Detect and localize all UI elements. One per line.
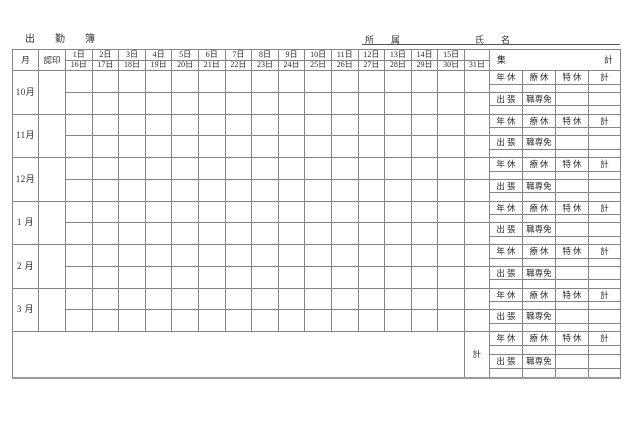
attendance-table: 月認印1日2日3日4日5日6日7日8日9日10日11日12日13日14日15日集… — [12, 49, 621, 379]
day-cell — [464, 223, 489, 245]
leave-label: 特 休 — [555, 332, 588, 346]
leave-label: 特 休 — [555, 114, 588, 128]
value-cell — [588, 84, 620, 92]
leave-label: 療 休 — [522, 114, 555, 128]
day-cell — [305, 201, 332, 223]
day-cell — [145, 136, 172, 158]
leave-label: 年 休 — [489, 158, 522, 172]
day-cell — [358, 114, 385, 136]
day-cell — [119, 288, 146, 310]
day-cell — [464, 158, 489, 180]
day-cell — [198, 223, 225, 245]
day-cell — [225, 136, 252, 158]
month-col-header: 月 — [13, 50, 39, 71]
value-cell — [588, 302, 620, 310]
day-cell — [278, 288, 305, 310]
value-cell — [489, 302, 522, 310]
value-cell — [555, 355, 588, 369]
day-cell — [252, 310, 279, 332]
day-cell — [252, 71, 279, 93]
day-cell — [119, 266, 146, 288]
day-cell — [145, 179, 172, 201]
day-cell — [66, 136, 93, 158]
duty-label: 職専免 — [522, 179, 555, 193]
value-cell — [489, 258, 522, 266]
leave-label: 計 — [588, 201, 620, 215]
month-row-leave-labels: 10月年 休療 休特 休計 — [13, 71, 621, 85]
day-cell — [66, 310, 93, 332]
day-cell — [385, 92, 412, 114]
day-cell — [119, 310, 146, 332]
day-cell — [66, 266, 93, 288]
day-cell — [305, 245, 332, 267]
duty-label: 出 張 — [489, 136, 522, 150]
day-cell — [411, 245, 438, 267]
value-cell — [489, 128, 522, 136]
day-cell — [385, 114, 412, 136]
day-cell — [331, 266, 358, 288]
day-cell — [331, 245, 358, 267]
value-cell — [522, 84, 555, 92]
day-cell — [438, 266, 465, 288]
day-header: 27日 — [358, 60, 385, 71]
day-cell — [225, 201, 252, 223]
duty-label: 出 張 — [489, 179, 522, 193]
day-cell — [66, 201, 93, 223]
day-cell — [411, 223, 438, 245]
day-header: 22日 — [225, 60, 252, 71]
value-cell — [522, 215, 555, 223]
value-cell — [555, 310, 588, 324]
value-cell — [555, 128, 588, 136]
value-cell — [588, 369, 620, 378]
value-cell — [588, 128, 620, 136]
day-cell — [411, 288, 438, 310]
day-cell — [145, 71, 172, 93]
value-cell — [489, 369, 522, 378]
day-cell — [252, 223, 279, 245]
month-row-duty-labels: 出 張職専免 — [13, 92, 621, 106]
day-cell — [198, 201, 225, 223]
value-cell — [588, 266, 620, 280]
day-cell — [172, 179, 199, 201]
day-cell — [66, 71, 93, 93]
day-cell — [145, 158, 172, 180]
day-cell — [305, 114, 332, 136]
value-cell — [588, 236, 620, 245]
leave-label: 特 休 — [555, 201, 588, 215]
day-header: 3日 — [119, 50, 146, 61]
day-cell — [145, 310, 172, 332]
duty-label: 出 張 — [489, 92, 522, 106]
value-cell — [522, 171, 555, 179]
day-cell — [198, 310, 225, 332]
day-cell — [278, 245, 305, 267]
day-cell — [119, 136, 146, 158]
day-cell — [331, 223, 358, 245]
day-header: 25日 — [305, 60, 332, 71]
value-cell — [489, 193, 522, 202]
day-cell — [252, 158, 279, 180]
day-cell — [411, 266, 438, 288]
month-row-duty-labels: 出 張職専免 — [13, 266, 621, 280]
day-cell — [92, 136, 119, 158]
day-cell — [92, 288, 119, 310]
day-cell — [331, 179, 358, 201]
day-header: 14日 — [411, 50, 438, 61]
day-cell — [92, 310, 119, 332]
month-label: 11月 — [13, 114, 39, 158]
day-cell — [305, 158, 332, 180]
day-cell — [119, 92, 146, 114]
seal-cell — [39, 71, 66, 115]
day-cell — [331, 201, 358, 223]
day-cell — [411, 158, 438, 180]
day31-header-top — [464, 50, 489, 61]
value-cell — [588, 136, 620, 150]
day-cell — [438, 245, 465, 267]
total-row-leave-labels: 計年 休療 休特 休計 — [13, 332, 621, 346]
day-cell — [119, 201, 146, 223]
month-row-duty-labels: 出 張職専免 — [13, 136, 621, 150]
day-cell — [305, 136, 332, 158]
day-cell — [92, 114, 119, 136]
day-header: 20日 — [172, 60, 199, 71]
duty-label: 職専免 — [522, 223, 555, 237]
day-cell — [278, 201, 305, 223]
day-cell — [66, 245, 93, 267]
day-cell — [411, 136, 438, 158]
value-cell — [555, 171, 588, 179]
day-cell — [385, 71, 412, 93]
day-cell — [278, 136, 305, 158]
day-header: 5日 — [172, 50, 199, 61]
day-cell — [358, 245, 385, 267]
day-cell — [278, 114, 305, 136]
seal-cell — [39, 245, 66, 289]
day-cell — [198, 114, 225, 136]
value-cell — [588, 149, 620, 158]
value-cell — [489, 149, 522, 158]
day-cell — [331, 158, 358, 180]
day-cell — [438, 223, 465, 245]
day-cell — [119, 158, 146, 180]
value-cell — [588, 280, 620, 289]
value-cell — [489, 323, 522, 332]
day-cell — [145, 223, 172, 245]
day-cell — [278, 223, 305, 245]
day-cell — [92, 266, 119, 288]
day-cell — [411, 201, 438, 223]
day-cell — [198, 288, 225, 310]
day-cell — [225, 245, 252, 267]
day-cell — [358, 71, 385, 93]
value-cell — [522, 280, 555, 289]
value-cell — [588, 258, 620, 266]
month-label: 10月 — [13, 71, 39, 115]
day-cell — [278, 310, 305, 332]
value-cell — [489, 215, 522, 223]
day-cell — [172, 288, 199, 310]
value-cell — [555, 106, 588, 115]
month-row-leave-labels: 2 月年 休療 休特 休計 — [13, 245, 621, 259]
leave-label: 計 — [588, 332, 620, 346]
summary-right-label: 計 — [604, 56, 613, 65]
day-cell — [305, 179, 332, 201]
day-cell — [198, 92, 225, 114]
day-cell — [358, 310, 385, 332]
day-cell — [145, 114, 172, 136]
duty-label: 出 張 — [489, 266, 522, 280]
day-cell — [358, 288, 385, 310]
day-cell — [172, 266, 199, 288]
day-header: 21日 — [198, 60, 225, 71]
leave-label: 計 — [588, 245, 620, 259]
day-header: 15日 — [438, 50, 465, 61]
day-header: 4日 — [145, 50, 172, 61]
value-cell — [588, 223, 620, 237]
month-label: 12月 — [13, 158, 39, 202]
leave-label: 療 休 — [522, 158, 555, 172]
day-cell — [252, 266, 279, 288]
day-cell — [464, 288, 489, 310]
day-cell — [252, 201, 279, 223]
day-cell — [172, 71, 199, 93]
value-cell — [555, 369, 588, 378]
day-cell — [331, 71, 358, 93]
value-cell — [489, 84, 522, 92]
value-cell — [522, 149, 555, 158]
day-cell — [331, 114, 358, 136]
day-cell — [119, 114, 146, 136]
day-cell — [305, 310, 332, 332]
leave-label: 特 休 — [555, 158, 588, 172]
day-cell — [225, 223, 252, 245]
day-cell — [411, 114, 438, 136]
day-cell — [66, 114, 93, 136]
day-cell — [119, 245, 146, 267]
grand-total-label: 計 — [464, 332, 489, 378]
day-cell — [225, 92, 252, 114]
leave-label: 特 休 — [555, 245, 588, 259]
day-cell — [358, 179, 385, 201]
day-cell — [385, 223, 412, 245]
day-cell — [225, 266, 252, 288]
day-cell — [66, 158, 93, 180]
day-cell — [438, 201, 465, 223]
day-cell — [252, 92, 279, 114]
duty-label: 職専免 — [522, 355, 555, 369]
day-header: 13日 — [385, 50, 412, 61]
day-cell — [252, 114, 279, 136]
value-cell — [555, 346, 588, 355]
value-cell — [588, 346, 620, 355]
day-cell — [438, 71, 465, 93]
day-cell — [145, 201, 172, 223]
day-cell — [198, 71, 225, 93]
day-header: 9日 — [278, 50, 305, 61]
month-row-leave-labels: 11月年 休療 休特 休計 — [13, 114, 621, 128]
day-cell — [172, 310, 199, 332]
day-cell — [172, 136, 199, 158]
day-cell — [385, 179, 412, 201]
day-cell — [464, 114, 489, 136]
day-cell — [145, 92, 172, 114]
day-cell — [225, 288, 252, 310]
day-cell — [331, 288, 358, 310]
value-cell — [555, 323, 588, 332]
leave-label: 療 休 — [522, 201, 555, 215]
day-cell — [464, 310, 489, 332]
header-row-top: 月認印1日2日3日4日5日6日7日8日9日10日11日12日13日14日15日集… — [13, 50, 621, 61]
leave-label: 年 休 — [489, 71, 522, 85]
day-cell — [385, 310, 412, 332]
day-cell — [331, 136, 358, 158]
day-cell — [119, 179, 146, 201]
leave-label: 特 休 — [555, 71, 588, 85]
duty-label: 職専免 — [522, 266, 555, 280]
duty-label: 出 張 — [489, 310, 522, 324]
value-cell — [555, 215, 588, 223]
value-cell — [588, 179, 620, 193]
value-cell — [489, 280, 522, 289]
duty-label: 職専免 — [522, 310, 555, 324]
day-cell — [172, 223, 199, 245]
day-cell — [198, 245, 225, 267]
day-cell — [438, 310, 465, 332]
day-cell — [92, 158, 119, 180]
value-cell — [588, 171, 620, 179]
day-cell — [225, 310, 252, 332]
value-cell — [555, 302, 588, 310]
day-cell — [464, 136, 489, 158]
day-cell — [92, 245, 119, 267]
day-cell — [464, 245, 489, 267]
day-header: 11日 — [331, 50, 358, 61]
leave-label: 計 — [588, 71, 620, 85]
day-cell — [66, 92, 93, 114]
day-cell — [278, 158, 305, 180]
day-cell — [358, 136, 385, 158]
day-cell — [66, 179, 93, 201]
day-cell — [66, 223, 93, 245]
day-header: 2日 — [92, 50, 119, 61]
day-cell — [358, 266, 385, 288]
day-header: 30日 — [438, 60, 465, 71]
day-header: 19日 — [145, 60, 172, 71]
value-cell — [588, 310, 620, 324]
value-cell — [522, 193, 555, 202]
day-cell — [464, 179, 489, 201]
value-cell — [555, 136, 588, 150]
value-cell — [555, 92, 588, 106]
day-cell — [66, 288, 93, 310]
day-cell — [252, 245, 279, 267]
leave-label: 特 休 — [555, 288, 588, 302]
day-cell — [385, 288, 412, 310]
page-title: 出 勤 簿 — [25, 30, 100, 45]
seal-col-header: 認印 — [39, 50, 66, 71]
leave-label: 年 休 — [489, 288, 522, 302]
day-cell — [331, 310, 358, 332]
day-cell — [438, 136, 465, 158]
day-cell — [225, 71, 252, 93]
day-cell — [92, 223, 119, 245]
value-cell — [522, 346, 555, 355]
total-span-cell — [13, 332, 465, 378]
day-cell — [385, 201, 412, 223]
day-header: 6日 — [198, 50, 225, 61]
day-cell — [305, 266, 332, 288]
value-cell — [555, 84, 588, 92]
summary-left-label: 集 — [497, 56, 506, 65]
day-cell — [145, 245, 172, 267]
day-cell — [305, 92, 332, 114]
value-cell — [555, 223, 588, 237]
day-cell — [438, 92, 465, 114]
leave-label: 療 休 — [522, 332, 555, 346]
day-header: 1日 — [66, 50, 93, 61]
day-header: 23日 — [252, 60, 279, 71]
value-cell — [588, 92, 620, 106]
day-header: 16日 — [66, 60, 93, 71]
month-row-duty-labels: 出 張職専免 — [13, 179, 621, 193]
day-cell — [464, 266, 489, 288]
leave-label: 計 — [588, 114, 620, 128]
seal-cell — [39, 201, 66, 245]
month-row-duty-labels: 出 張職専免 — [13, 310, 621, 324]
seal-cell — [39, 288, 66, 332]
leave-label: 年 休 — [489, 114, 522, 128]
summary-header-inner: 集計 — [490, 56, 620, 65]
month-row-duty-labels: 出 張職専免 — [13, 223, 621, 237]
day-cell — [172, 92, 199, 114]
day-cell — [225, 158, 252, 180]
day-cell — [119, 71, 146, 93]
leave-label: 年 休 — [489, 245, 522, 259]
day-cell — [358, 92, 385, 114]
day-header: 17日 — [92, 60, 119, 71]
day-cell — [225, 179, 252, 201]
day-cell — [252, 288, 279, 310]
value-cell — [588, 193, 620, 202]
value-cell — [555, 179, 588, 193]
value-cell — [555, 266, 588, 280]
month-row-leave-labels: 1 月年 休療 休特 休計 — [13, 201, 621, 215]
day-cell — [92, 92, 119, 114]
day-cell — [358, 223, 385, 245]
value-cell — [522, 128, 555, 136]
day-cell — [92, 71, 119, 93]
day-cell — [252, 179, 279, 201]
day-cell — [252, 136, 279, 158]
attendance-form-page: 出 勤 簿 所 属 氏 名 月認印1日2日3日4日5日6日7日8日9日10日11… — [0, 0, 630, 440]
value-cell — [555, 193, 588, 202]
day-cell — [278, 71, 305, 93]
day-header: 8日 — [252, 50, 279, 61]
day-cell — [411, 310, 438, 332]
value-cell — [555, 258, 588, 266]
day-cell — [358, 158, 385, 180]
day-header: 7日 — [225, 50, 252, 61]
value-cell — [522, 106, 555, 115]
value-cell — [489, 346, 522, 355]
leave-label: 年 休 — [489, 332, 522, 346]
day-cell — [198, 158, 225, 180]
day-cell — [438, 158, 465, 180]
day-cell — [385, 136, 412, 158]
day-cell — [438, 288, 465, 310]
